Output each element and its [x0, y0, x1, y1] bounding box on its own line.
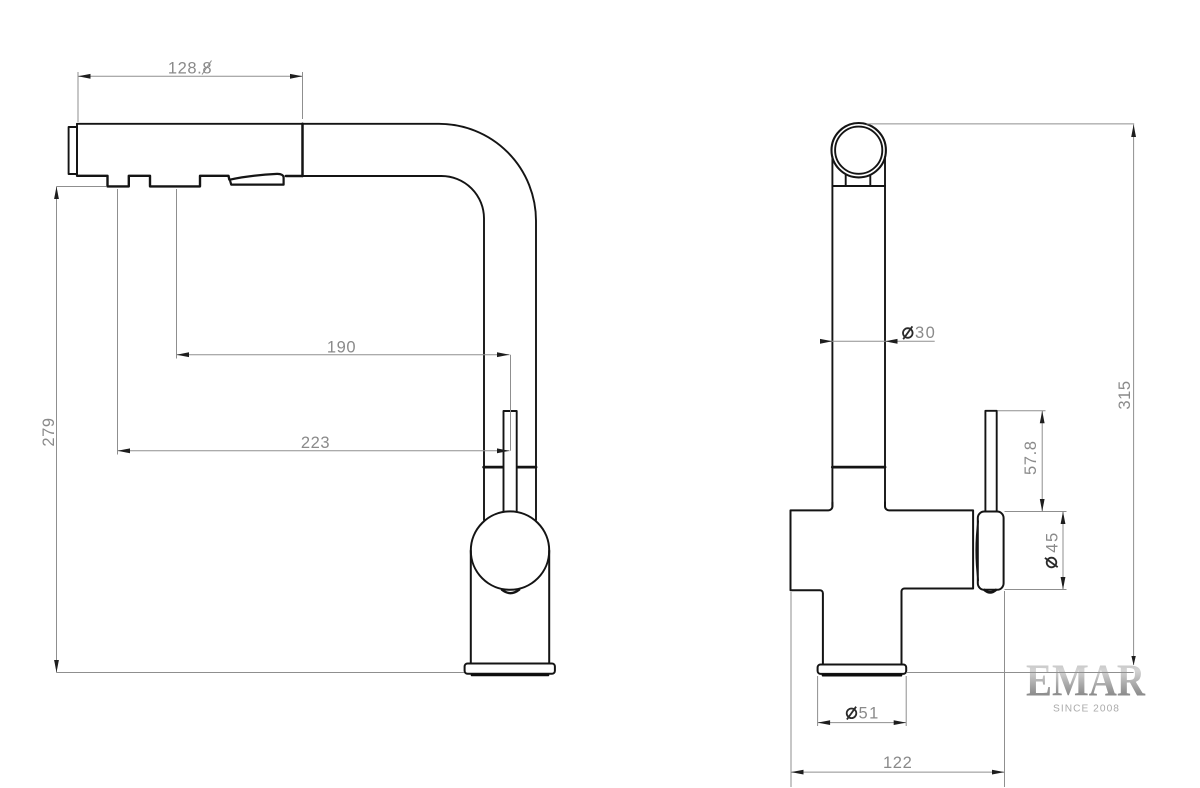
- svg-text:30: 30: [915, 324, 936, 342]
- svg-text:279: 279: [40, 417, 58, 446]
- svg-text:315: 315: [1116, 380, 1134, 409]
- svg-text:57.8: 57.8: [1022, 440, 1040, 475]
- svg-text:EMAR: EMAR: [1026, 656, 1145, 706]
- svg-text:45: 45: [1044, 531, 1062, 552]
- svg-text:SINCE 2008: SINCE 2008: [1053, 703, 1120, 714]
- svg-text:190: 190: [327, 339, 356, 357]
- svg-text:51: 51: [859, 705, 880, 723]
- svg-text:122: 122: [883, 754, 912, 772]
- svg-text:223: 223: [301, 434, 330, 452]
- svg-text:128.8: 128.8: [168, 59, 212, 77]
